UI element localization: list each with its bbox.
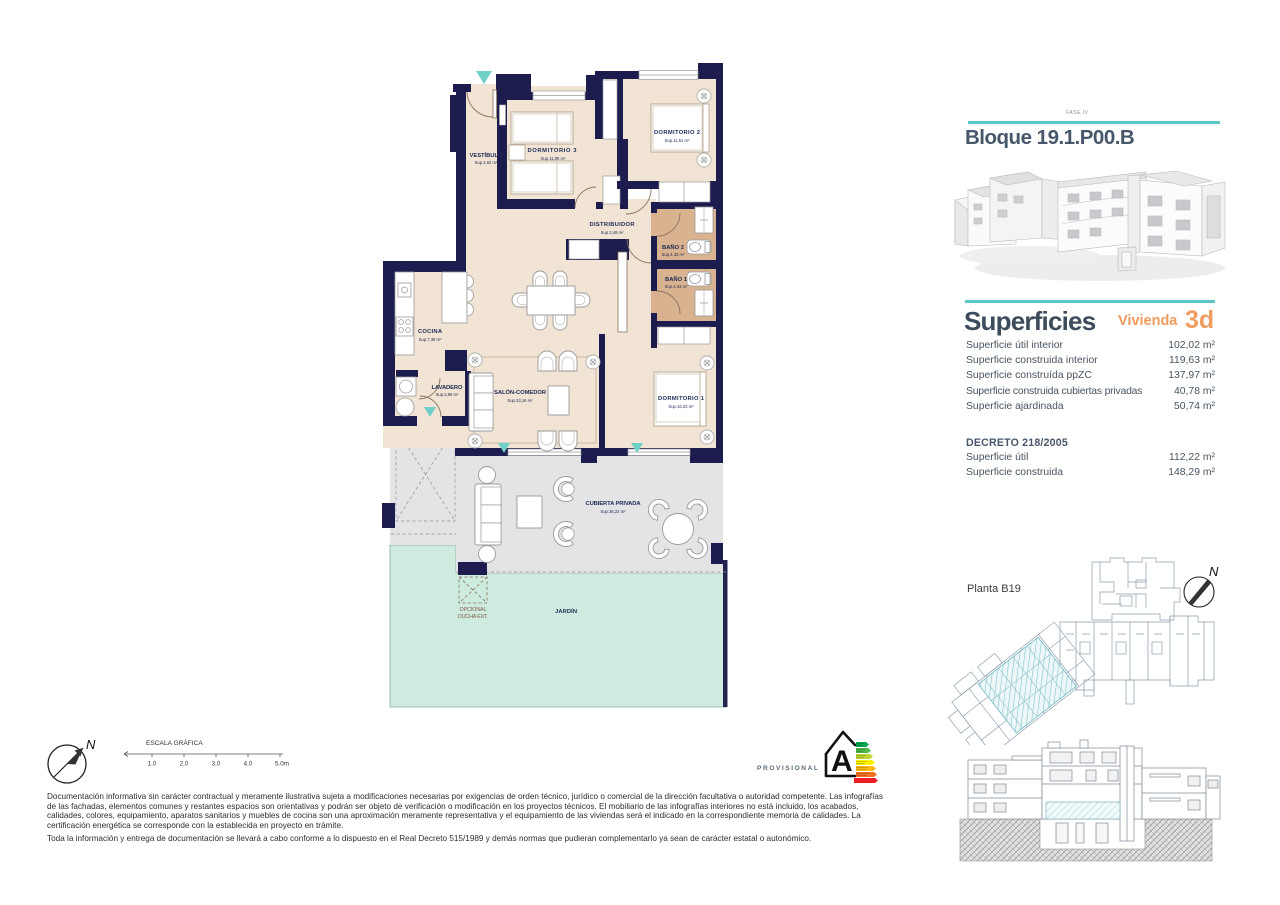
svg-text:Sup.4,63 m²: Sup.4,63 m² xyxy=(475,160,498,165)
svg-text:BAÑO 1: BAÑO 1 xyxy=(665,276,688,283)
svg-text:SALÓN-COMEDOR: SALÓN-COMEDOR xyxy=(494,388,547,396)
svg-text:3.0: 3.0 xyxy=(212,761,221,768)
svg-text:N: N xyxy=(86,737,96,752)
svg-text:COCINA: COCINA xyxy=(418,329,443,335)
svg-text:Sup.16,23 m²: Sup.16,23 m² xyxy=(668,404,694,409)
svg-text:DISTRIBUIDOR: DISTRIBUIDOR xyxy=(590,222,636,228)
svg-text:JARDÍN: JARDÍN xyxy=(555,607,577,615)
svg-text:DORMITORIO 1: DORMITORIO 1 xyxy=(658,396,705,402)
svg-text:2.0: 2.0 xyxy=(180,761,189,768)
svg-text:LAVADERO: LAVADERO xyxy=(432,385,463,391)
svg-text:Sup.4,33 m²: Sup.4,33 m² xyxy=(662,252,685,257)
svg-text:Sup.4,33 m²: Sup.4,33 m² xyxy=(665,284,688,289)
svg-text:Sup.7,38 m²: Sup.7,38 m² xyxy=(419,337,442,342)
svg-text:BAÑO 2: BAÑO 2 xyxy=(662,244,684,251)
svg-text:A: A xyxy=(831,745,853,778)
svg-text:Sup.36,22 m²: Sup.36,22 m² xyxy=(600,509,626,514)
svg-text:DORMITORIO 3: DORMITORIO 3 xyxy=(528,148,578,154)
svg-text:5.0m: 5.0m xyxy=(275,761,289,768)
svg-text:N: N xyxy=(1209,564,1219,579)
svg-text:Sup.11,99 m²: Sup.11,99 m² xyxy=(541,156,566,161)
svg-text:1.0: 1.0 xyxy=(148,761,157,768)
svg-text:Sup.3,96 m²: Sup.3,96 m² xyxy=(436,392,459,397)
svg-text:CUBIERTA PRIVADA: CUBIERTA PRIVADA xyxy=(586,501,642,507)
svg-text:Sup.3,48 m²: Sup.3,48 m² xyxy=(601,230,624,235)
svg-text:DUCHA EXT.: DUCHA EXT. xyxy=(458,614,488,620)
svg-text:VESTÍBULO: VESTÍBULO xyxy=(470,151,503,159)
svg-text:Sup.33,16 m²: Sup.33,16 m² xyxy=(507,398,533,403)
svg-text:4.0: 4.0 xyxy=(244,761,253,768)
svg-text:DORMITORIO 2: DORMITORIO 2 xyxy=(654,130,700,136)
svg-text:OPCIONAL: OPCIONAL xyxy=(460,607,487,613)
svg-text:Sup.11,51 m²: Sup.11,51 m² xyxy=(665,138,690,143)
